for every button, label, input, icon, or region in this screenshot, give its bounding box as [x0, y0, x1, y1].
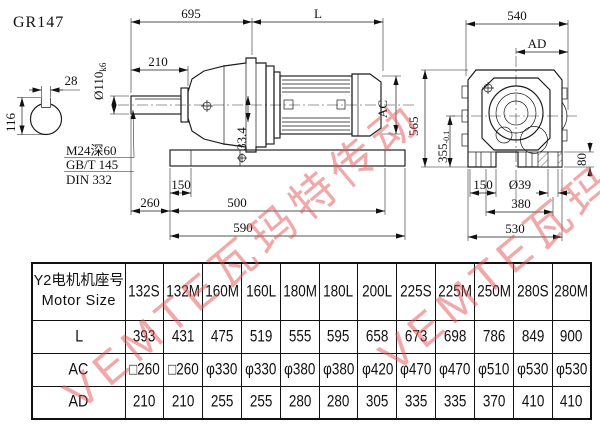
base-plate: [170, 150, 405, 166]
thread-note-block: M24深60 GB/T 145 DIN 332: [64, 110, 134, 187]
col-header: 160L: [241, 263, 280, 320]
dim-530-label: 530: [505, 221, 525, 236]
cell-value: φ470: [439, 361, 470, 379]
table-cell: 370: [474, 386, 513, 419]
dim-500: 500: [170, 168, 385, 215]
col-header: 160M: [203, 263, 242, 320]
table-cell: φ470: [436, 353, 475, 386]
dim-260-label: 260: [140, 195, 160, 210]
table-cell: φ330: [241, 353, 280, 386]
dim-150-front: 150: [170, 168, 191, 197]
dim-33-4: 33.4: [234, 96, 249, 163]
dim-355: 355-0.1: [435, 116, 455, 167]
col-header-label: 250M: [477, 283, 511, 301]
col-header-label: 160M: [205, 283, 239, 301]
table-cell: 555: [280, 320, 319, 353]
table-cell: 335: [436, 386, 475, 419]
table-header-row: Y2电机机座号 Motor Size 132S 132M 160M 160L 1…: [32, 263, 591, 320]
cell-value: 900: [560, 328, 583, 346]
cell-value: 410: [521, 393, 544, 411]
col-header-label: 160L: [246, 283, 276, 301]
table-row-AD: AD 210 210 255 255 280 280 305 335 335 3…: [32, 386, 591, 419]
cell-value: □260: [168, 361, 199, 379]
table-cell: φ420: [358, 353, 397, 386]
dim-260: 260: [131, 116, 170, 215]
dim-590-label: 590: [233, 220, 253, 235]
table-cell: 595: [319, 320, 358, 353]
table-cell: 849: [513, 320, 552, 353]
cell-value: 475: [211, 328, 234, 346]
table-cell: 431: [164, 320, 203, 353]
standard-din-label: DIN 332: [66, 172, 112, 187]
cell-value: 255: [250, 393, 273, 411]
dim-AD-label: AD: [528, 36, 547, 51]
table-cell: φ530: [513, 353, 552, 386]
cell-value: 370: [483, 393, 506, 411]
table-cell: φ330: [203, 353, 242, 386]
dim-355-label: 355-0.1: [435, 131, 451, 163]
table-cell: 786: [474, 320, 513, 353]
col-header: 280S: [513, 263, 552, 320]
table-cell: φ530: [552, 353, 591, 386]
col-header-label: 225S: [400, 283, 432, 301]
cell-value: 431: [172, 328, 195, 346]
cell-value: φ470: [401, 361, 432, 379]
cell-value: 393: [133, 328, 156, 346]
dim-116-label: 116: [3, 112, 18, 132]
dim-28: 28: [29, 73, 80, 97]
table-cell: 519: [241, 320, 280, 353]
col-header-label: 180L: [324, 283, 354, 301]
table-cell: 335: [397, 386, 436, 419]
dim-L-label: L: [314, 6, 322, 21]
table-cell: 475: [203, 320, 242, 353]
row-label: AC: [32, 353, 125, 386]
col-header: 280M: [552, 263, 591, 320]
dim-695-label: 695: [181, 6, 201, 21]
col-header: 180M: [280, 263, 319, 320]
cell-value: φ510: [478, 361, 509, 379]
motor-size-header-en: Motor Size: [33, 292, 125, 312]
dim-210-label: 210: [148, 54, 168, 69]
center-mark-housing: [201, 100, 213, 112]
table-cell: 255: [203, 386, 242, 419]
cell-value: 210: [133, 393, 156, 411]
dim-590: 590: [170, 168, 405, 240]
table-cell: 410: [513, 386, 552, 419]
keyway-mask: [41, 96, 51, 108]
table-cell: 255: [241, 386, 280, 419]
dim-33-4-label: 33.4: [234, 127, 249, 150]
cell-value: 849: [521, 328, 544, 346]
table-cell: φ380: [280, 353, 319, 386]
row-label-text: L: [75, 327, 83, 346]
cell-value: 335: [405, 393, 428, 411]
side-housing: [462, 70, 567, 167]
side-view: 540 AD 565 355-0.1: [406, 8, 594, 241]
cell-value: φ330: [206, 361, 237, 379]
cell-value: φ530: [517, 361, 548, 379]
cell-value: 280: [327, 393, 350, 411]
cell-value: 305: [366, 393, 389, 411]
dim-shaft-diameter: Ø110k6: [91, 62, 129, 114]
col-header-label: 180M: [283, 283, 317, 301]
dim-565-label: 565: [406, 117, 421, 137]
col-header-label: 132M: [166, 283, 200, 301]
shaft-circle: [31, 104, 62, 135]
dim-210: 210: [131, 54, 188, 86]
dim-80-label: 80: [574, 153, 589, 166]
dim-150-front-label: 150: [171, 177, 191, 192]
cell-value: 595: [327, 328, 350, 346]
cell-value: φ380: [284, 361, 315, 379]
dim-28-label: 28: [65, 73, 78, 88]
table-cell: 658: [358, 320, 397, 353]
cell-value: 555: [288, 328, 311, 346]
dim-AD: AD: [516, 36, 568, 54]
dim-39-label: Ø39: [509, 177, 531, 192]
dim-150-side: 150: [470, 169, 496, 197]
row-label-text: AD: [69, 392, 89, 411]
dim-540: 540: [466, 8, 568, 110]
col-header: 250M: [474, 263, 513, 320]
table-row-L: L 393 431 475 519 555 595 658 673 698 78…: [32, 320, 591, 353]
dim-80: 80: [564, 142, 594, 177]
center-mark-side: [482, 82, 494, 94]
thread-note-label: M24深60: [66, 143, 117, 158]
cell-value: 786: [483, 328, 506, 346]
dim-39: Ø39: [509, 169, 570, 197]
model-number-label: GR147: [13, 14, 64, 31]
cell-value: 280: [288, 393, 311, 411]
col-header: 225S: [397, 263, 436, 320]
table-cell: □260: [125, 353, 164, 386]
table-cell: 210: [164, 386, 203, 419]
row-label: L: [32, 320, 125, 353]
col-header: 132M: [164, 263, 203, 320]
table-cell: 305: [358, 386, 397, 419]
dim-shaft-diameter-label: Ø110k6: [91, 62, 108, 100]
table-cell: 698: [436, 320, 475, 353]
page: GR147 28 116 M24深60: [0, 0, 600, 441]
cell-value: φ380: [323, 361, 354, 379]
dim-380-label: 380: [511, 196, 531, 211]
dim-500-label: 500: [227, 195, 247, 210]
table-cell: φ380: [319, 353, 358, 386]
cell-value: 658: [366, 328, 389, 346]
cell-value: 410: [560, 393, 583, 411]
table-cell: 673: [397, 320, 436, 353]
col-header-label: 225M: [438, 283, 472, 301]
dimension-table-wrap: Y2电机机座号 Motor Size 132S 132M 160M 160L 1…: [31, 262, 592, 420]
motor-size-header-cn: Y2电机机座号: [33, 272, 125, 292]
col-header-label: 132S: [129, 283, 161, 301]
table-cell: φ510: [474, 353, 513, 386]
table-cell: 393: [125, 320, 164, 353]
col-header-label: 280S: [517, 283, 549, 301]
dim-150-side-label: 150: [473, 177, 493, 192]
table-cell: 280: [319, 386, 358, 419]
dim-AC-label: AC: [375, 100, 390, 118]
front-view: 695 L 210 Ø110k6 33.4: [91, 6, 415, 240]
table-cell: 210: [125, 386, 164, 419]
cell-value: □260: [129, 361, 160, 379]
dim-L: L: [252, 6, 383, 71]
cell-value: 210: [172, 393, 195, 411]
table-cell: 900: [552, 320, 591, 353]
table-cell: 280: [280, 386, 319, 419]
cell-value: 255: [211, 393, 234, 411]
shaft-section-view: 28 116 M24深60 GB/T 145 DIN 332: [3, 73, 134, 187]
table-cell: φ470: [397, 353, 436, 386]
dim-540-label: 540: [507, 8, 527, 23]
technical-drawing: GR147 28 116 M24深60: [0, 0, 600, 258]
col-header-label: 200L: [362, 283, 392, 301]
table-cell: □260: [164, 353, 203, 386]
row-label: AD: [32, 386, 125, 419]
dimension-table: Y2电机机座号 Motor Size 132S 132M 160M 160L 1…: [31, 262, 592, 420]
col-header: 200L: [358, 263, 397, 320]
cell-value: 698: [444, 328, 467, 346]
col-header: 225M: [436, 263, 475, 320]
table-row-AC: AC □260 □260 φ330 φ330 φ380 φ380 φ420 φ4…: [32, 353, 591, 386]
table-cell: 410: [552, 386, 591, 419]
cell-value: 519: [250, 328, 273, 346]
motor-size-header: Y2电机机座号 Motor Size: [32, 263, 125, 320]
cell-value: φ530: [556, 361, 587, 379]
col-header: 180L: [319, 263, 358, 320]
cell-value: 673: [405, 328, 428, 346]
col-header: 132S: [125, 263, 164, 320]
row-label-text: AC: [69, 360, 89, 379]
cell-value: φ330: [245, 361, 276, 379]
dim-AC: AC: [375, 76, 401, 134]
col-header-label: 280M: [554, 283, 588, 301]
dim-116: 116: [3, 98, 46, 135]
cell-value: 335: [444, 393, 467, 411]
standard-gbt-label: GB/T 145: [66, 157, 118, 172]
cell-value: φ420: [362, 361, 393, 379]
